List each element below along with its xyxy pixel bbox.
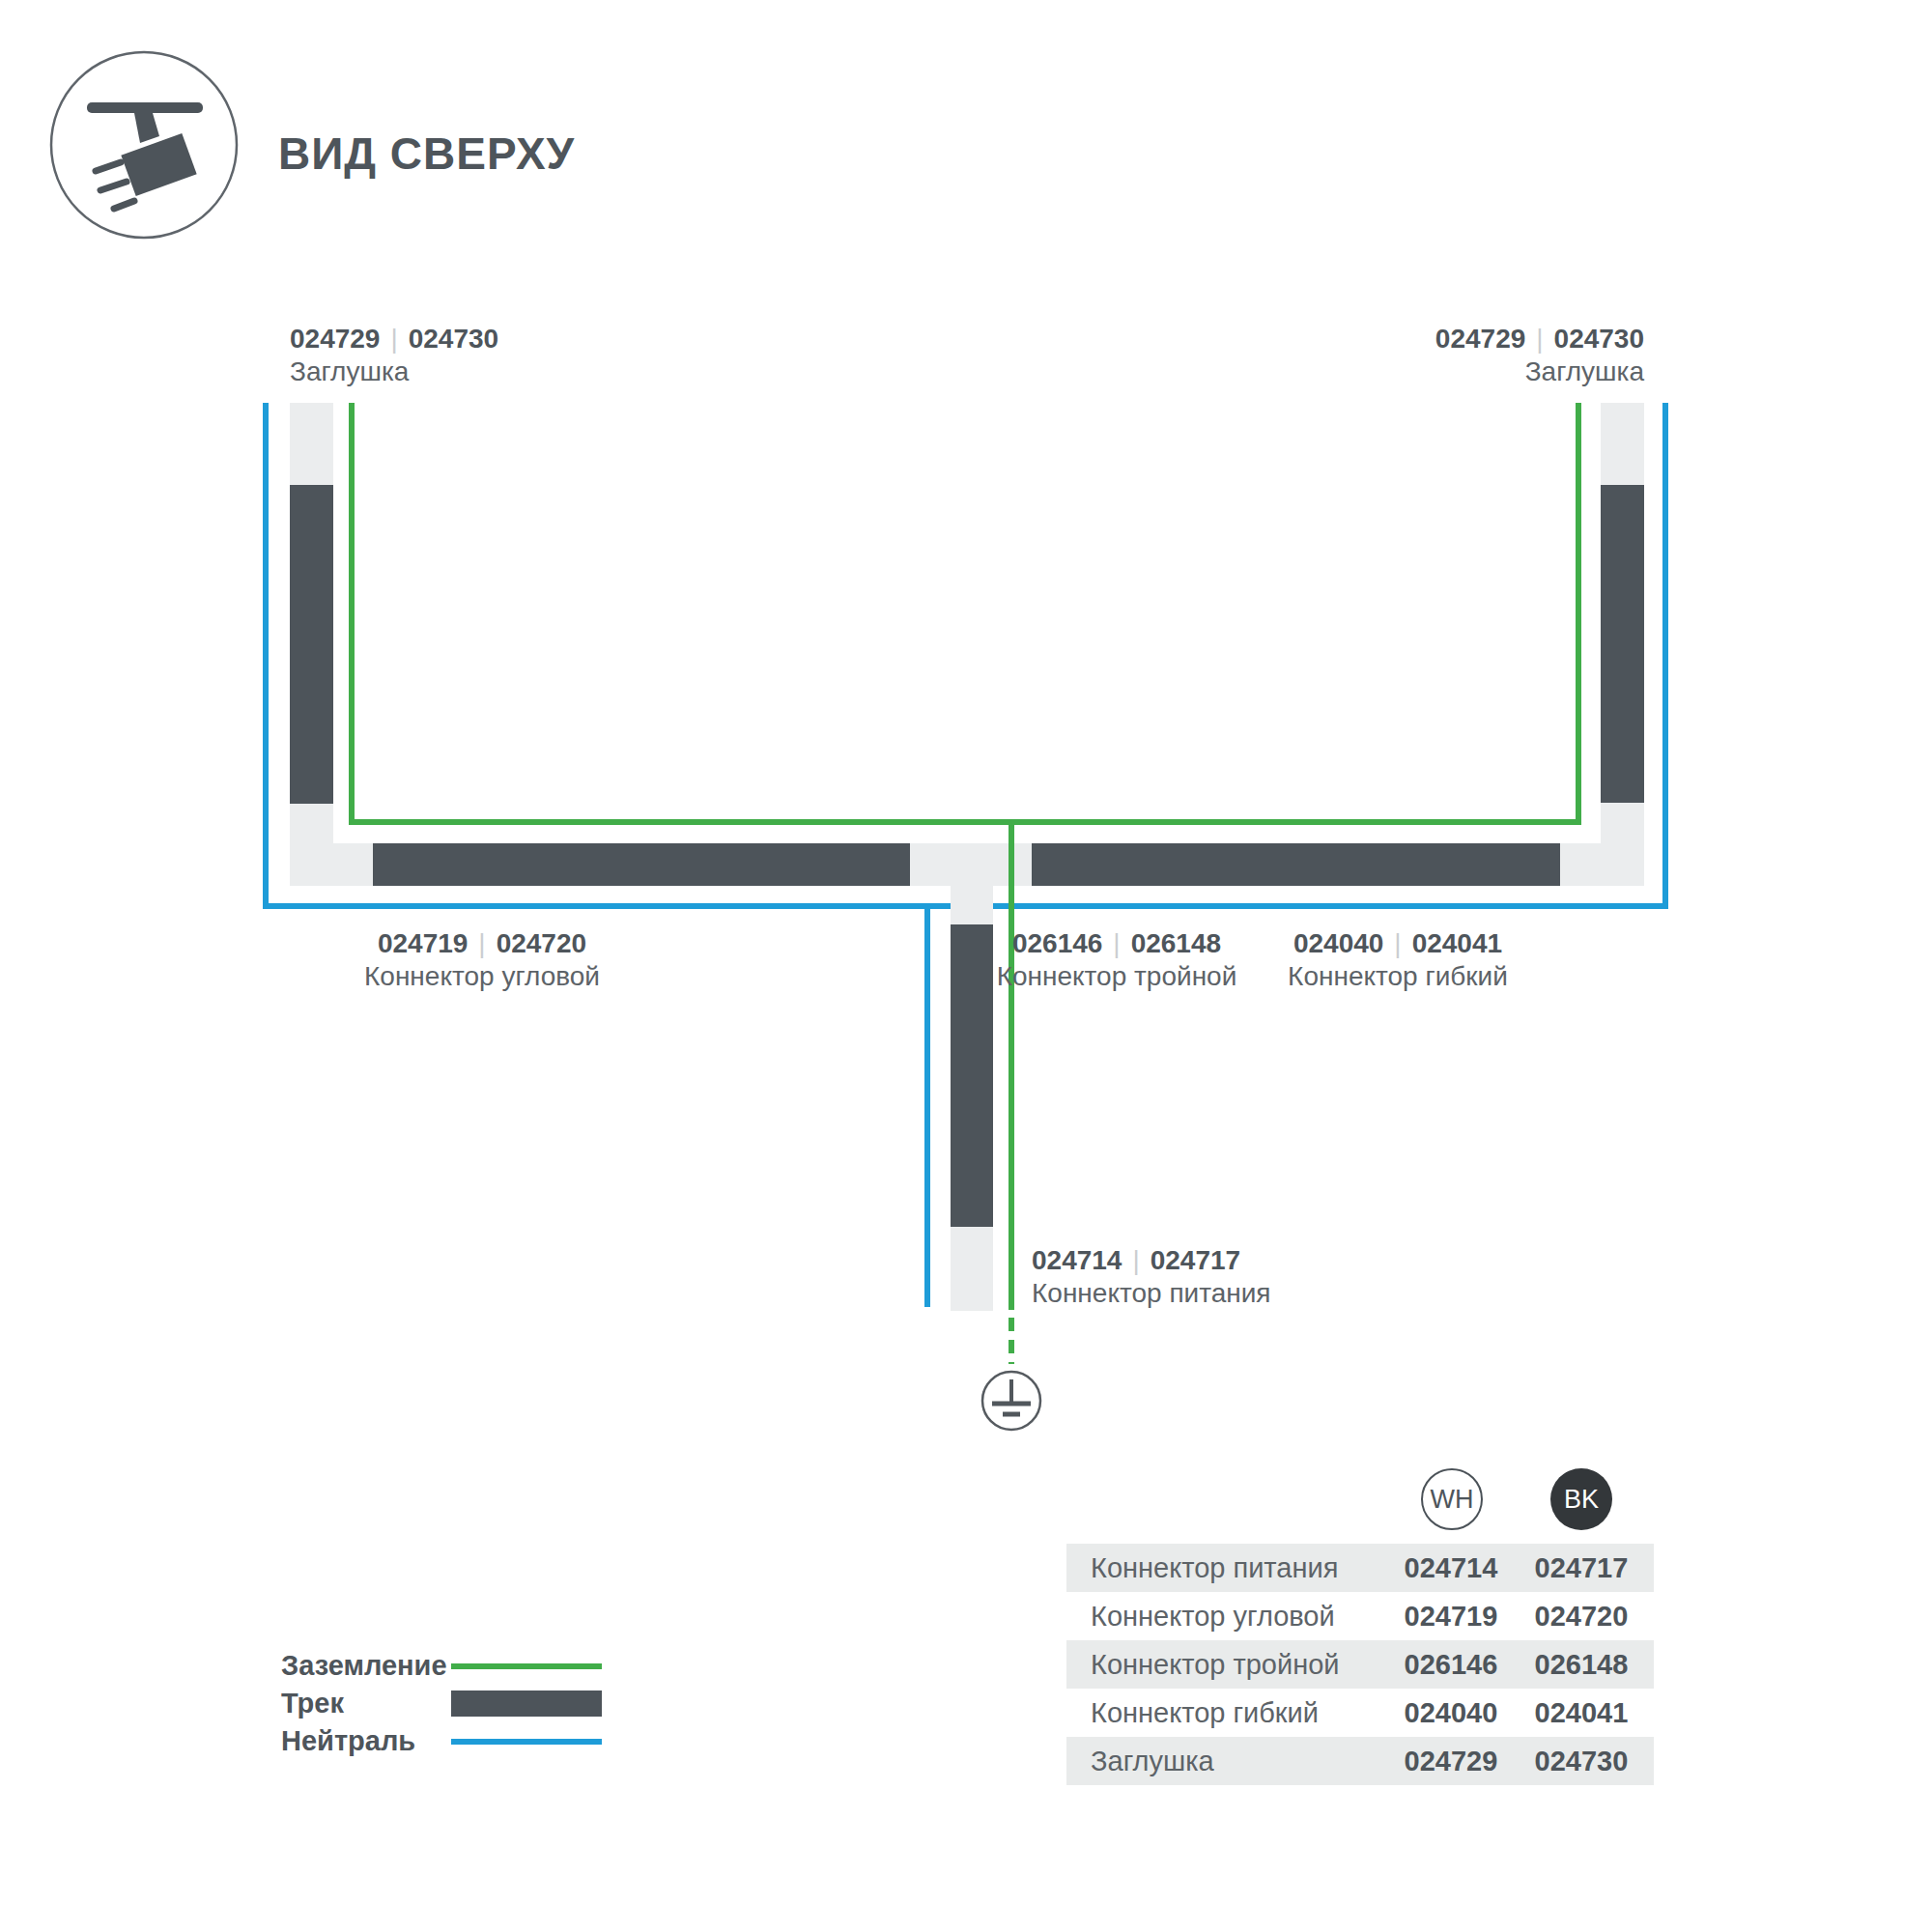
track-segment-right-arm (1601, 485, 1644, 803)
neutral-wire-left (266, 403, 951, 906)
part-code-bk: 024041 (1509, 1697, 1654, 1729)
ground-line-swatch (451, 1663, 602, 1669)
track-segment-left-arm (290, 485, 333, 804)
label-triple-connector: 026146|026148 Коннектор тройной (997, 927, 1237, 993)
track-bar-swatch (451, 1690, 602, 1717)
track-segment-horizontal-left (373, 843, 910, 886)
top-view-spotlight-icon (0, 0, 290, 290)
label-corner-connector: 024719|024720 Коннектор угловой (364, 927, 600, 993)
part-name: Заглушка (1066, 1746, 1393, 1777)
part-name: Коннектор угловой (1066, 1601, 1393, 1633)
label-flexible-connector: 024040|024041 Коннектор гибкий (1288, 927, 1508, 993)
table-row: Коннектор питания 024714 024717 (1066, 1544, 1654, 1592)
legend: Заземление Трек Нейтраль (281, 1647, 602, 1760)
parts-table: WH BK Коннектор питания 024714 024717 Ко… (1066, 1468, 1654, 1785)
neutral-wire-right (993, 403, 1665, 906)
part-code-wh: 024040 (1393, 1697, 1509, 1729)
part-code-wh: 024714 (1393, 1552, 1509, 1584)
legend-row-ground: Заземление (281, 1647, 602, 1685)
part-code-bk: 024717 (1509, 1552, 1654, 1584)
earth-ground-symbol (982, 1372, 1040, 1430)
legend-row-neutral: Нейтраль (281, 1722, 602, 1760)
part-code-wh: 026146 (1393, 1649, 1509, 1681)
pipe-separator: | (1394, 928, 1401, 958)
icon-circle (51, 52, 237, 238)
part-code-bk: 026148 (1509, 1649, 1654, 1681)
page-title: ВИД СВЕРХУ (278, 128, 575, 180)
table-row: Коннектор тройной 026146 026148 (1066, 1640, 1654, 1689)
parts-table-header: WH BK (1066, 1468, 1654, 1530)
part-name: Коннектор гибкий (1066, 1697, 1393, 1729)
pipe-separator: | (1132, 1245, 1139, 1275)
part-code-wh: 024719 (1393, 1601, 1509, 1633)
color-badge-black: BK (1550, 1468, 1612, 1530)
part-code-wh: 024729 (1393, 1746, 1509, 1777)
legend-row-track: Трек (281, 1685, 602, 1722)
pipe-separator: | (478, 928, 485, 958)
label-endcap-right: 024729|024730 Заглушка (1435, 323, 1644, 388)
pipe-separator: | (1113, 928, 1120, 958)
legend-label: Трек (281, 1688, 344, 1719)
track-segment-stem (951, 924, 993, 1227)
part-code-bk: 024730 (1509, 1746, 1654, 1777)
neutral-line-swatch (451, 1739, 602, 1745)
label-power-connector: 024714|024717 Коннектор питания (1032, 1244, 1271, 1310)
legend-label: Нейтраль (281, 1725, 415, 1757)
pipe-separator: | (390, 324, 397, 354)
table-row: Коннектор угловой 024719 024720 (1066, 1592, 1654, 1640)
track-segment-horizontal-right (1032, 843, 1560, 886)
color-badge-white: WH (1421, 1468, 1483, 1530)
part-name: Коннектор тройной (1066, 1649, 1393, 1681)
part-code-bk: 024720 (1509, 1601, 1654, 1633)
pipe-separator: | (1536, 324, 1543, 354)
ground-wire-main (352, 403, 1578, 822)
label-endcap-left: 024729|024730 Заглушка (290, 323, 498, 388)
legend-label: Заземление (281, 1650, 447, 1682)
part-name: Коннектор питания (1066, 1552, 1393, 1584)
icon-ceiling-track (87, 102, 203, 113)
table-row: Коннектор гибкий 024040 024041 (1066, 1689, 1654, 1737)
table-row: Заглушка 024729 024730 (1066, 1737, 1654, 1785)
